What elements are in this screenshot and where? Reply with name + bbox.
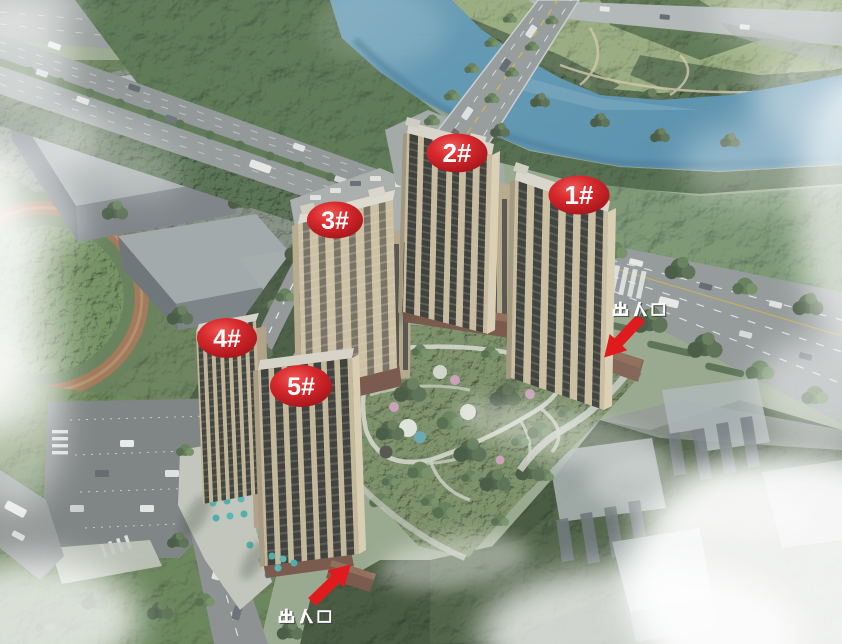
svg-text:1#: 1#: [565, 180, 594, 210]
svg-text:2#: 2#: [443, 138, 472, 168]
svg-text:4#: 4#: [213, 325, 241, 353]
svg-text:3#: 3#: [321, 207, 349, 235]
svg-text:5#: 5#: [287, 373, 315, 401]
